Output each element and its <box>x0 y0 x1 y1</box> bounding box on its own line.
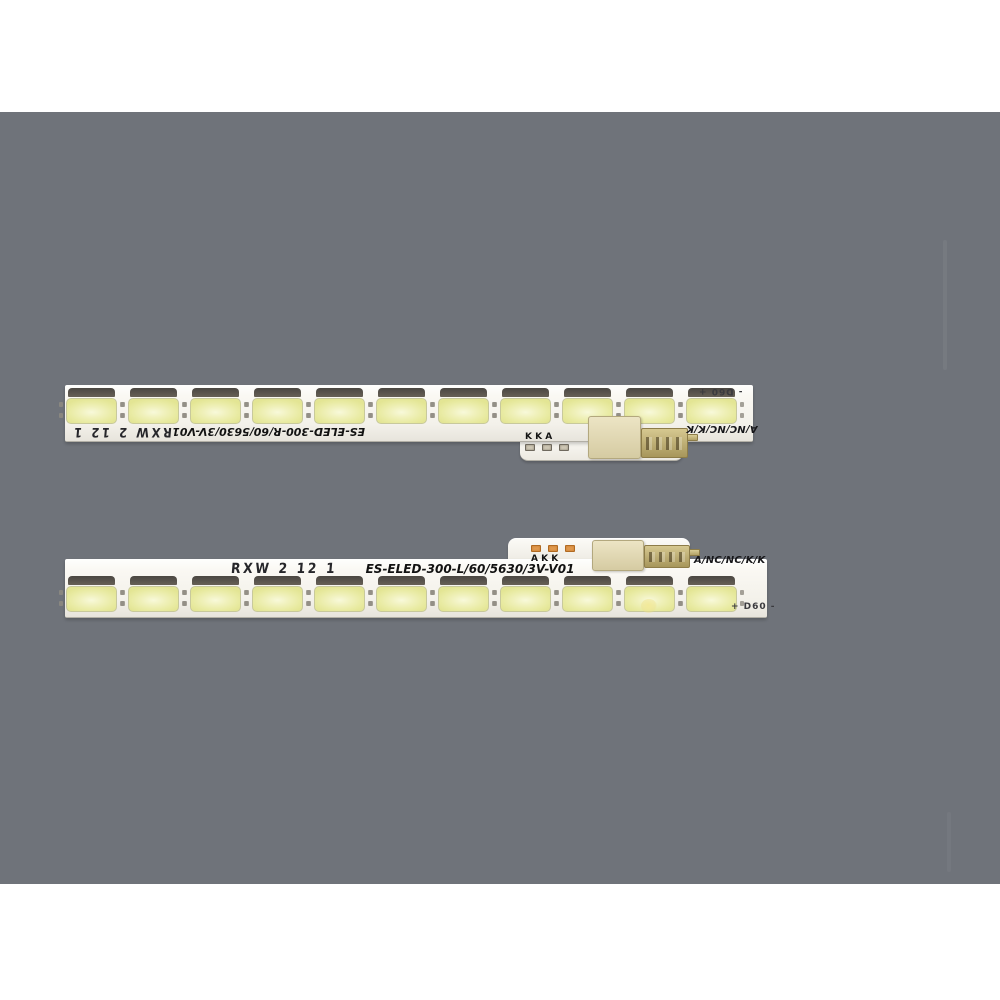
led-face <box>376 586 427 612</box>
led-face <box>438 398 489 424</box>
solder-pad-marks <box>369 590 373 595</box>
terminal-pad-letters: A K K <box>531 554 591 564</box>
led-face <box>252 398 303 424</box>
solder-pad-marks <box>431 402 435 407</box>
solder-pad-marks <box>493 590 497 595</box>
solder-pad-marks <box>245 590 249 595</box>
polarity-marking: - D60 + <box>698 386 743 396</box>
led-face <box>562 586 613 612</box>
led-dark-band <box>378 388 425 397</box>
strip-label-line: RXW 2 12 1 ES-ELED-300-L/60/5630/3V-V01 <box>231 561 571 577</box>
solder-pad <box>525 444 535 451</box>
led-face <box>500 398 551 424</box>
led-chip <box>438 388 489 426</box>
solder-pad-marks <box>617 590 621 595</box>
led-dark-band <box>316 388 363 397</box>
pinout-marking: A/NC/NC/K/K <box>686 423 757 434</box>
terminal-pads <box>531 545 591 552</box>
handwritten-marking: RXW 2 12 1 <box>71 425 173 440</box>
solder-pad-marks <box>369 402 373 407</box>
wire-connector-housing <box>588 416 641 459</box>
led-face <box>314 586 365 612</box>
led-chip <box>562 576 613 614</box>
led-chip <box>314 576 365 614</box>
led-face <box>190 586 241 612</box>
terminal-pad-letters: K K A <box>525 432 585 442</box>
led-dark-band <box>440 388 487 397</box>
solder-pad-marks <box>431 590 435 595</box>
connector-pin-tip <box>687 434 698 441</box>
solder-pad-marks <box>555 590 559 595</box>
led-dark-band <box>626 576 673 585</box>
led-dark-band <box>502 388 549 397</box>
led-dark-band <box>626 388 673 397</box>
led-chip <box>376 576 427 614</box>
led-dark-band <box>316 576 363 585</box>
led-dark-band <box>130 388 177 397</box>
solder-pad-marks <box>679 590 683 595</box>
solder-pad-marks <box>245 402 249 407</box>
led-dark-band <box>440 576 487 585</box>
led-face <box>128 398 179 424</box>
led-dark-band <box>564 388 611 397</box>
led-face <box>438 586 489 612</box>
led-dark-band <box>192 576 239 585</box>
solder-pad <box>559 444 569 451</box>
led-chip <box>500 388 551 426</box>
led-chip <box>500 576 551 614</box>
solder-pad-marks <box>617 402 621 407</box>
solder-pad <box>531 545 541 552</box>
solder-pad-marks <box>307 402 311 407</box>
terminal-pads <box>525 444 585 451</box>
led-chip <box>66 576 117 614</box>
led-chip <box>128 388 179 426</box>
led-chip <box>252 388 303 426</box>
wire-connector-housing <box>592 540 644 571</box>
solder-pad-marks <box>59 590 63 595</box>
led-chip <box>128 576 179 614</box>
wire-connector-plug <box>641 428 688 458</box>
solder-pad-marks <box>183 402 187 407</box>
led-dark-band <box>68 388 115 397</box>
solder-pad-marks <box>183 590 187 595</box>
led-face <box>500 586 551 612</box>
led-face <box>66 586 117 612</box>
pinout-marking: A/NC/NC/K/K <box>694 555 765 566</box>
led-face <box>128 586 179 612</box>
led-face <box>66 398 117 424</box>
solder-pad-marks <box>121 402 125 407</box>
led-chip <box>376 388 427 426</box>
terminal-pad-block: K K A <box>525 432 585 451</box>
led-dark-band <box>502 576 549 585</box>
solder-pad-marks <box>493 402 497 407</box>
led-dark-band <box>378 576 425 585</box>
glue-dot <box>641 599 657 613</box>
connector-pins <box>649 552 685 561</box>
led-strip-lower-L: RXW 2 12 1 ES-ELED-300-L/60/5630/3V-V01 … <box>65 536 771 624</box>
led-chip <box>252 576 303 614</box>
led-chip <box>438 576 489 614</box>
led-chip <box>66 388 117 426</box>
polarity-marking: + D60 - <box>731 602 776 612</box>
solder-pad-marks <box>679 402 683 407</box>
terminal-pad-block: A K K <box>531 545 591 564</box>
solder-pad <box>565 545 575 552</box>
led-chip <box>190 576 241 614</box>
model-number-text: ES-ELED-300-R/60/5630/3V-V01 <box>172 426 365 439</box>
led-dark-band <box>254 576 301 585</box>
solder-pad-marks <box>59 402 63 407</box>
led-face <box>376 398 427 424</box>
led-dark-band <box>192 388 239 397</box>
led-dark-band <box>688 576 735 585</box>
led-face <box>314 398 365 424</box>
solder-pad-marks <box>121 590 125 595</box>
led-face <box>686 398 737 424</box>
led-chip <box>190 388 241 426</box>
led-strip-upper-R: ES-ELED-300-R/60/5630/3V-V01 RXW 2 12 1 … <box>65 383 757 467</box>
handwritten-marking: RXW 2 12 1 <box>230 561 338 577</box>
led-dark-band <box>68 576 115 585</box>
led-dark-band <box>564 576 611 585</box>
solder-pad-marks <box>307 590 311 595</box>
led-chip <box>314 388 365 426</box>
solder-pad-marks <box>740 402 744 407</box>
solder-pad <box>548 545 558 552</box>
led-face <box>252 586 303 612</box>
wire-connector-plug <box>644 545 690 568</box>
led-dark-band <box>254 388 301 397</box>
led-face <box>190 398 241 424</box>
connector-pins <box>646 437 683 450</box>
led-dark-band <box>130 576 177 585</box>
product-photo: ES-ELED-300-R/60/5630/3V-V01 RXW 2 12 1 … <box>0 0 1000 1000</box>
model-number-text: ES-ELED-300-L/60/5630/3V-V01 <box>366 562 575 576</box>
solder-pad <box>542 444 552 451</box>
strip-label-line: ES-ELED-300-R/60/5630/3V-V01 RXW 2 12 1 <box>93 424 365 440</box>
led-face <box>686 586 737 612</box>
led-chip <box>686 576 737 614</box>
solder-pad-marks <box>740 590 744 595</box>
solder-pad-marks <box>555 402 559 407</box>
